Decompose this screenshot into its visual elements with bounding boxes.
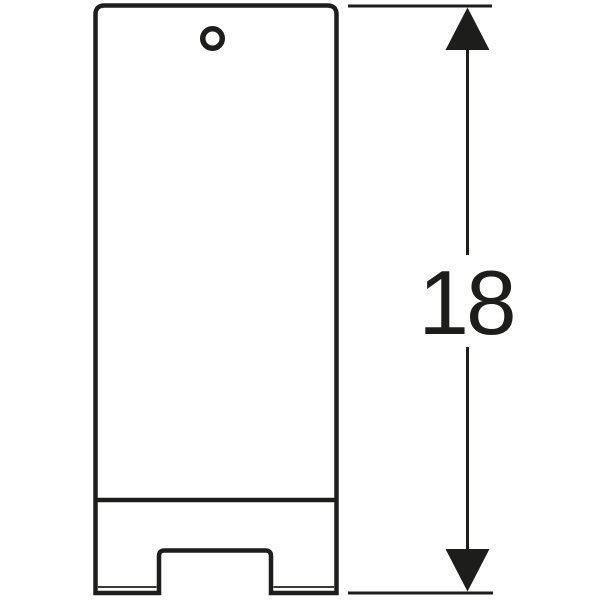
drawing-canvas: 18: [0, 0, 600, 600]
dimension-label: 18: [418, 253, 513, 354]
bracket-dimension-drawing: 18: [0, 0, 600, 600]
bracket-outline: [96, 6, 337, 594]
mounting-hole: [203, 29, 223, 49]
dimension-group: 18: [348, 6, 514, 593]
arrow-down-icon: [446, 549, 490, 592]
arrow-up-icon: [446, 8, 490, 51]
bracket-group: [96, 6, 337, 594]
